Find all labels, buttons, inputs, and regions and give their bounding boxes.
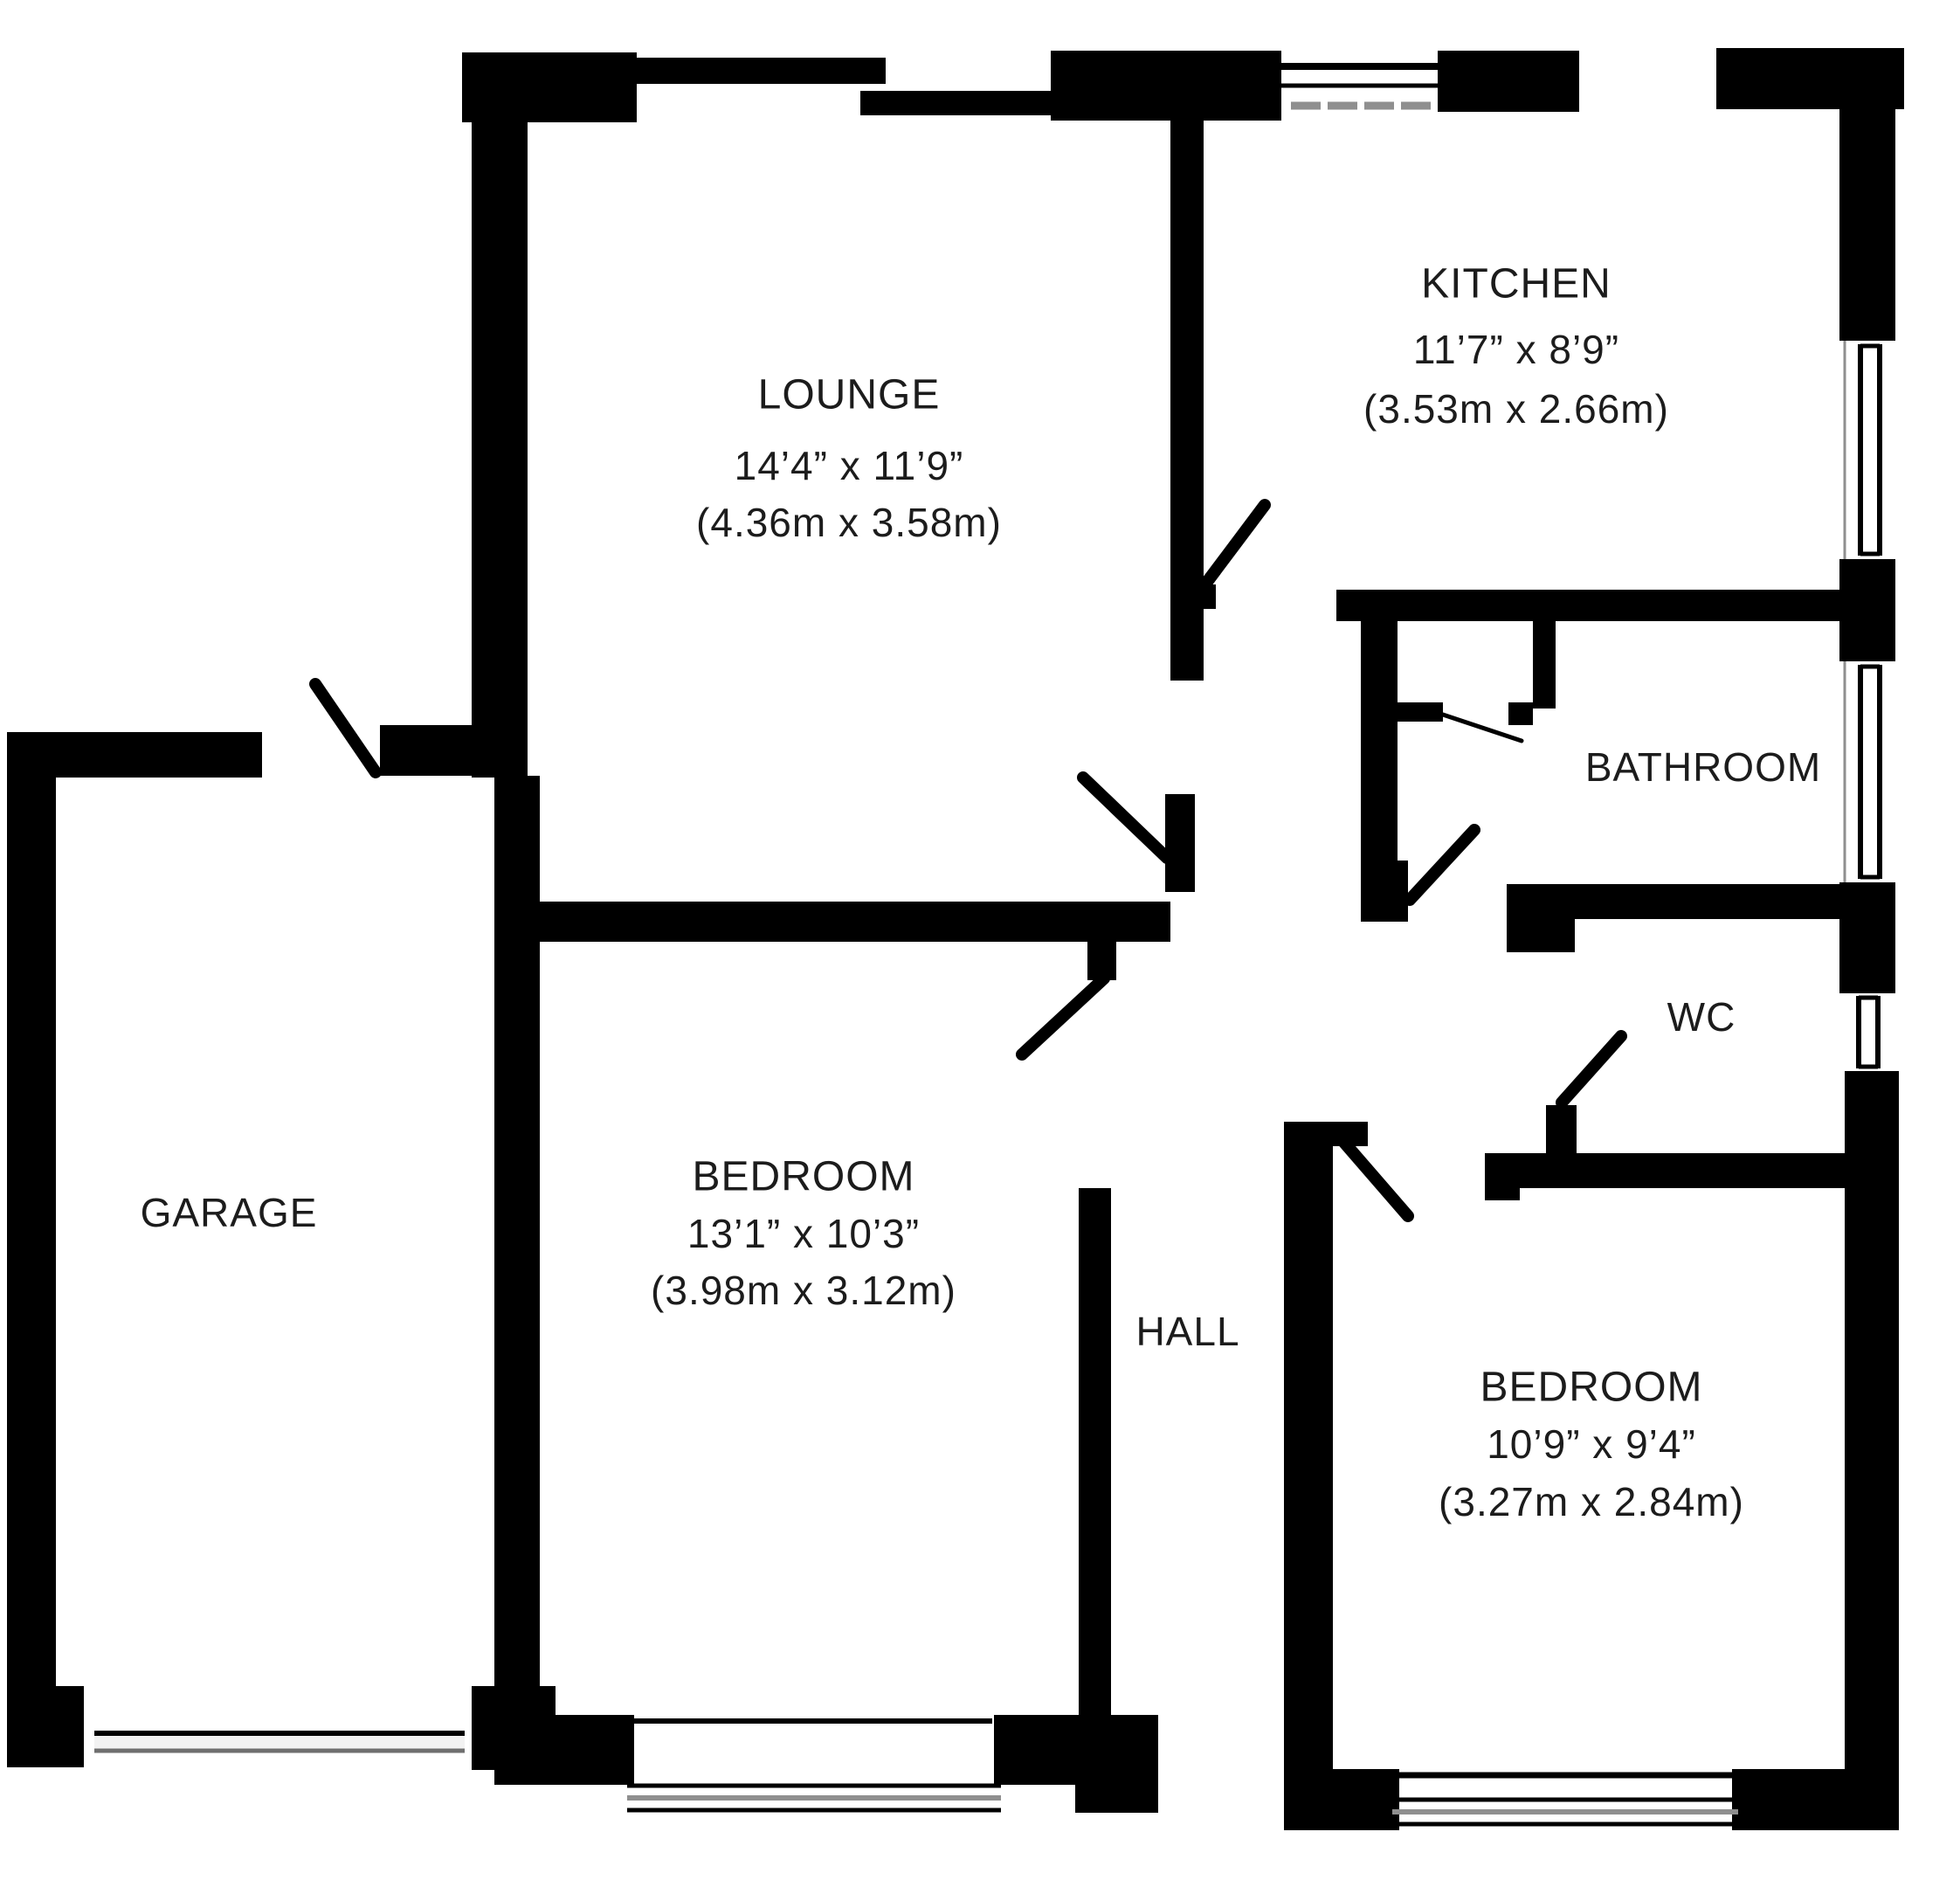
wall xyxy=(1839,559,1895,661)
bathroom-door-leaf xyxy=(1410,830,1474,900)
room-label-garage: GARAGE xyxy=(141,1189,318,1236)
room-dims-metric-bedroom-left: (3.98m x 3.12m) xyxy=(651,1267,956,1314)
room-label-bedroom-left: BEDROOM xyxy=(692,1153,914,1201)
bedroom-right-door-leaf xyxy=(1340,1137,1408,1216)
room-label-lounge: LOUNGE xyxy=(758,371,941,419)
room-dims-imperial-bedroom-right: 10’9” x 9’4” xyxy=(1487,1420,1696,1468)
wall xyxy=(528,902,1170,942)
wall xyxy=(380,725,503,776)
wall xyxy=(1508,702,1533,725)
door-stop xyxy=(1546,1105,1577,1155)
wall xyxy=(528,58,886,84)
wall xyxy=(1051,51,1281,121)
wc-door-leaf xyxy=(1562,1036,1621,1103)
wall xyxy=(1485,1153,1845,1188)
room-dims-metric-kitchen: (3.53m x 2.66m) xyxy=(1363,385,1669,432)
room-label-bedroom-right: BEDROOM xyxy=(1480,1364,1702,1412)
room-dims-imperial-bedroom-left: 13’1” x 10’3” xyxy=(687,1210,920,1257)
room-dims-metric-lounge: (4.36m x 3.58m) xyxy=(696,499,1002,546)
wall xyxy=(1507,919,1575,952)
bedroom-left-door-leaf xyxy=(1022,978,1104,1054)
room-dims-metric-bedroom-right: (3.27m x 2.84m) xyxy=(1439,1478,1744,1525)
wall xyxy=(494,776,540,1770)
wall xyxy=(1839,48,1895,341)
wall xyxy=(1507,884,1845,919)
wall xyxy=(7,1686,84,1767)
window xyxy=(1841,993,1892,1071)
room-label-wc: WC xyxy=(1667,993,1736,1040)
wall xyxy=(1438,51,1579,112)
room-label-bathroom: BATHROOM xyxy=(1585,743,1821,791)
front-door-leaf xyxy=(315,684,376,772)
wall xyxy=(472,1686,556,1770)
wall xyxy=(1079,1188,1111,1725)
room-dims-imperial-lounge: 14’4” x 11’9” xyxy=(735,442,964,489)
room-label-kitchen: KITCHEN xyxy=(1421,260,1611,308)
wall xyxy=(1361,621,1398,874)
door-stop xyxy=(1204,584,1216,609)
window xyxy=(1281,51,1438,112)
wall xyxy=(7,732,56,1767)
wall xyxy=(1845,1071,1899,1830)
wall xyxy=(1284,1122,1333,1830)
lounge-door-leaf xyxy=(1083,778,1167,858)
room-label-hall: HALL xyxy=(1135,1308,1239,1355)
wall xyxy=(860,91,1051,115)
floorplan: LOUNGE 14’4” x 11’9” (4.36m x 3.58m) KIT… xyxy=(0,0,1960,1894)
wall xyxy=(1361,861,1408,922)
wall xyxy=(472,52,528,778)
walls xyxy=(7,48,1904,1830)
window xyxy=(1839,341,1895,559)
window xyxy=(1392,1769,1738,1830)
wall xyxy=(1732,1769,1899,1830)
kitchen-door-leaf xyxy=(1207,505,1265,582)
wall xyxy=(1533,621,1556,709)
garage-door xyxy=(94,1733,465,1751)
wall xyxy=(1839,882,1895,993)
window xyxy=(1839,661,1895,882)
room-dims-imperial-kitchen: 11’7” x 8’9” xyxy=(1413,326,1619,373)
wall xyxy=(1336,590,1845,621)
wall xyxy=(1170,114,1204,681)
wall xyxy=(994,1715,1075,1785)
wall xyxy=(1075,1715,1158,1813)
wall xyxy=(1398,702,1443,722)
floorplan-drawing xyxy=(0,0,1960,1894)
wall xyxy=(1485,1153,1520,1200)
wall xyxy=(1284,1769,1399,1830)
wall xyxy=(1165,794,1195,892)
